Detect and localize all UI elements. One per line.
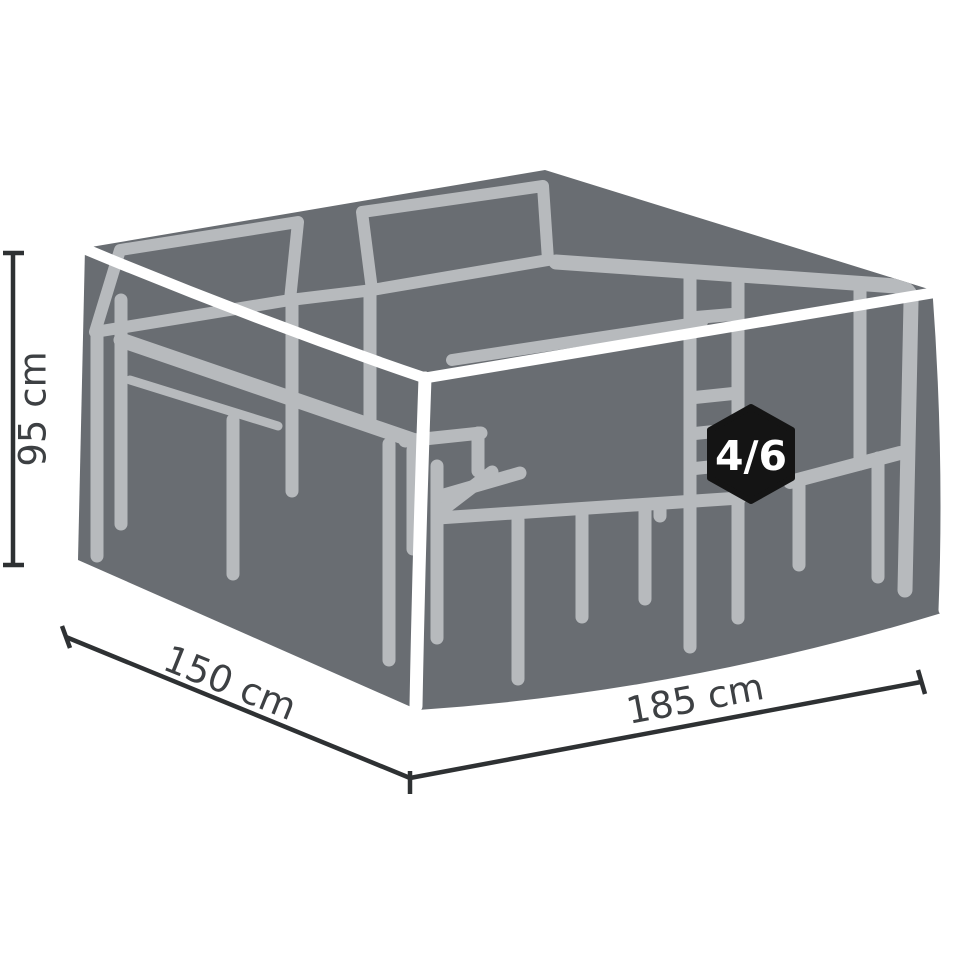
chair-rung	[690, 393, 738, 398]
chair-rung	[690, 314, 738, 318]
depth-dimension-label: 150 cm	[158, 637, 303, 729]
product-dimension-image: 95 cm 150 cm 185 cm 4/6	[0, 0, 960, 960]
furniture-cover-diagram: 95 cm 150 cm 185 cm 4/6	[0, 0, 960, 960]
quantity-badge-label: 4/6	[715, 432, 787, 480]
quantity-badge: 4/6	[710, 407, 792, 501]
height-dimension-label: 95 cm	[12, 351, 55, 466]
